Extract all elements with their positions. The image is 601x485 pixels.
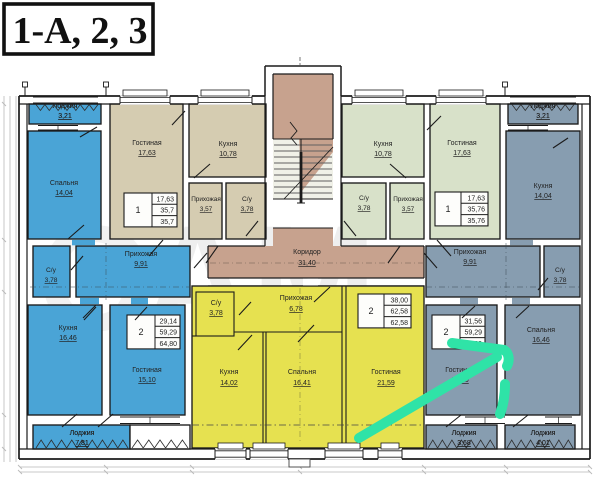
svg-text:35,76: 35,76 <box>467 207 485 214</box>
svg-text:14,04: 14,04 <box>534 193 552 200</box>
svg-text:14,04: 14,04 <box>55 190 73 197</box>
svg-text:3,68: 3,68 <box>457 440 471 447</box>
svg-text:Лоджия: Лоджия <box>531 103 556 110</box>
svg-text:Лоджия: Лоджия <box>452 430 477 437</box>
svg-text:Кухня: Кухня <box>220 369 239 376</box>
svg-text:3,21: 3,21 <box>58 113 72 120</box>
svg-text:62,58: 62,58 <box>390 320 408 327</box>
svg-text:17,63: 17,63 <box>453 150 471 157</box>
svg-text:31,40: 31,40 <box>298 260 316 267</box>
svg-text:16,46: 16,46 <box>532 337 550 344</box>
svg-text:Гостиная: Гостиная <box>132 367 162 374</box>
svg-text:Кухня: Кухня <box>534 183 553 190</box>
svg-text:3,57: 3,57 <box>200 206 213 213</box>
svg-text:6,78: 6,78 <box>289 306 303 313</box>
svg-text:Лоджия: Лоджия <box>70 430 95 437</box>
svg-text:Прихожая: Прихожая <box>280 295 313 302</box>
svg-text:7,81: 7,81 <box>75 440 89 447</box>
svg-text:64,80: 64,80 <box>159 341 177 348</box>
svg-text:Прихожая: Прихожая <box>191 196 221 203</box>
svg-text:21,59: 21,59 <box>377 380 395 387</box>
svg-text:35,7: 35,7 <box>160 208 174 215</box>
svg-text:59,29: 59,29 <box>464 330 482 337</box>
svg-text:31,56: 31,56 <box>464 318 482 325</box>
svg-text:Спальня: Спальня <box>527 327 555 334</box>
svg-text:Спальня: Спальня <box>50 180 78 187</box>
svg-text:38,00: 38,00 <box>390 297 408 304</box>
svg-text:Лоджия: Лоджия <box>531 430 556 437</box>
svg-text:10,78: 10,78 <box>374 151 392 158</box>
svg-text:3,78: 3,78 <box>358 205 371 212</box>
svg-text:16,41: 16,41 <box>293 380 311 387</box>
svg-text:Гостиная: Гостиная <box>447 140 477 147</box>
svg-text:3,78: 3,78 <box>45 277 58 284</box>
svg-text:4,01: 4,01 <box>536 440 550 447</box>
svg-text:17,63: 17,63 <box>138 150 156 157</box>
svg-text:Кухня: Кухня <box>219 141 238 148</box>
svg-text:15,10: 15,10 <box>138 377 156 384</box>
svg-text:3,78: 3,78 <box>209 310 223 317</box>
svg-text:2: 2 <box>138 327 143 337</box>
svg-text:9,91: 9,91 <box>463 259 477 266</box>
svg-text:С/у: С/у <box>555 267 566 274</box>
svg-text:Спальня: Спальня <box>288 369 316 376</box>
svg-text:1-А, 2, 3: 1-А, 2, 3 <box>12 10 147 52</box>
svg-text:35,7: 35,7 <box>160 219 174 226</box>
svg-text:1: 1 <box>445 204 450 214</box>
svg-text:Прихожая: Прихожая <box>393 196 423 203</box>
svg-text:59,29: 59,29 <box>159 330 177 337</box>
svg-text:Кухня: Кухня <box>374 141 393 148</box>
svg-text:Кухня: Кухня <box>59 325 78 332</box>
svg-text:Гостиная: Гостиная <box>371 369 401 376</box>
svg-text:3,21: 3,21 <box>536 113 550 120</box>
svg-text:Лоджия: Лоджия <box>53 103 78 110</box>
svg-text:29,14: 29,14 <box>159 318 177 325</box>
svg-text:1: 1 <box>135 205 140 215</box>
svg-text:16,46: 16,46 <box>59 335 77 342</box>
svg-text:17,63: 17,63 <box>467 195 485 202</box>
svg-text:14,02: 14,02 <box>220 380 238 387</box>
svg-text:Прихожая: Прихожая <box>454 249 487 256</box>
svg-text:35,76: 35,76 <box>467 218 485 225</box>
svg-text:С/у: С/у <box>211 300 222 307</box>
svg-text:С/у: С/у <box>242 196 253 203</box>
svg-text:С/у: С/у <box>359 195 370 202</box>
svg-text:Гостиная: Гостиная <box>132 140 162 147</box>
svg-text:10,78: 10,78 <box>219 151 237 158</box>
svg-text:17,63: 17,63 <box>156 196 174 203</box>
svg-text:2: 2 <box>443 327 448 337</box>
svg-text:3,78: 3,78 <box>554 277 567 284</box>
svg-text:3,57: 3,57 <box>402 206 415 213</box>
svg-text:С/у: С/у <box>46 267 57 274</box>
svg-text:2: 2 <box>368 306 373 316</box>
svg-text:9,91: 9,91 <box>134 261 148 268</box>
svg-text:62,58: 62,58 <box>390 309 408 316</box>
svg-text:Коридор: Коридор <box>293 249 321 256</box>
svg-text:3,78: 3,78 <box>241 206 254 213</box>
